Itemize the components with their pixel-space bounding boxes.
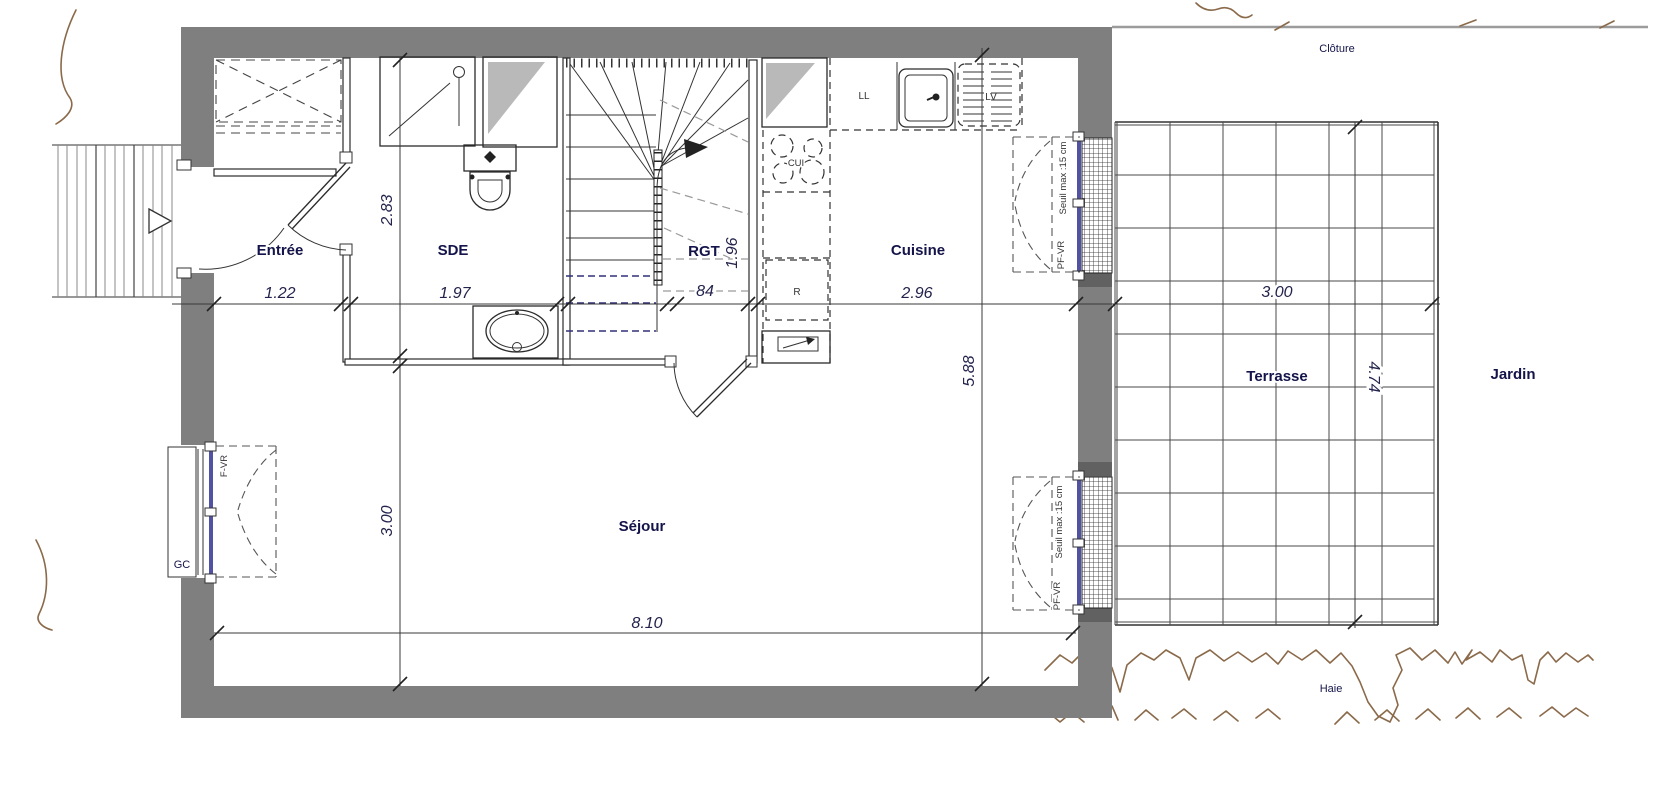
hedge-label: Haie bbox=[1320, 683, 1343, 695]
toilet bbox=[464, 145, 516, 210]
shutter-grille bbox=[1082, 477, 1112, 608]
room-label-entree: Entrée bbox=[257, 242, 304, 259]
partitions-and-doors bbox=[177, 58, 757, 417]
dim-sejour-depth: 3.00 bbox=[379, 505, 396, 536]
tall-cabinet-panel bbox=[762, 58, 827, 127]
entry-closet bbox=[214, 60, 341, 176]
counter-outline bbox=[763, 58, 1022, 363]
window-label-pf-vr-sejour: PF-VR bbox=[1052, 582, 1063, 611]
dim-terrasse-width: 3.00 bbox=[1261, 284, 1292, 301]
threshold-label-sejour: Seuil max :15 cm bbox=[1054, 485, 1065, 558]
wall-bottom bbox=[181, 686, 1112, 718]
roller-box-gc bbox=[168, 447, 196, 577]
room-label-sejour: Séjour bbox=[619, 518, 666, 535]
appliance-label-cooktop: CUI bbox=[788, 158, 804, 169]
window-label-pf-vr-kitchen: PF-VR bbox=[1056, 241, 1067, 270]
bathroom-fixtures bbox=[380, 57, 558, 358]
garden-area: Clôture Terrasse Jardin Haie bbox=[1045, 3, 1648, 724]
wall-top bbox=[181, 27, 1112, 58]
sink bbox=[897, 62, 955, 130]
appliance-label-washer: LL bbox=[858, 91, 870, 102]
front-door-opening bbox=[179, 167, 216, 273]
front-door-jamb-cap bbox=[177, 160, 191, 170]
left-plant-squiggle-top bbox=[56, 10, 76, 124]
staircase bbox=[566, 62, 749, 332]
dim-cuisine-width: 2.96 bbox=[900, 285, 932, 302]
room-label-sde: SDE bbox=[438, 242, 469, 259]
window-label-f-vr: F-VR bbox=[219, 455, 230, 477]
room-label-rgt: RGT bbox=[688, 243, 720, 260]
floor-plan-drawing: Clôture Terrasse Jardin Haie bbox=[0, 0, 1667, 800]
shower bbox=[380, 57, 475, 146]
rgt-door bbox=[665, 356, 757, 417]
entrance-direction-arrow bbox=[149, 209, 171, 233]
radiator-box bbox=[762, 331, 830, 363]
fence-label: Clôture bbox=[1319, 43, 1354, 55]
dim-sde-width: 1.97 bbox=[439, 285, 471, 302]
dim-rgt-depth: 1.96 bbox=[724, 237, 741, 268]
wall-stairs-sejour bbox=[563, 359, 672, 365]
dim-cuisine-depth: 5.88 bbox=[961, 355, 978, 386]
washbasin bbox=[473, 306, 558, 358]
wall-left bbox=[181, 58, 214, 686]
dim-sde-depth: 2.83 bbox=[379, 194, 396, 226]
terrace-label: Terrasse bbox=[1246, 368, 1307, 385]
top-window-panel bbox=[483, 57, 557, 147]
door-jamb-cap bbox=[340, 152, 352, 163]
dim-entree-width: 1.22 bbox=[264, 285, 295, 302]
dim-sejour-width: 8.10 bbox=[631, 615, 662, 632]
fence-plant-marks bbox=[1275, 20, 1614, 30]
fence-plant-squiggle bbox=[1196, 3, 1252, 18]
dim-rgt-width: 84 bbox=[696, 283, 714, 300]
room-label-cuisine: Cuisine bbox=[891, 242, 945, 259]
entrance-steps bbox=[36, 10, 181, 630]
shutter-grille bbox=[1082, 138, 1112, 273]
partition-rgt-cuisine bbox=[749, 60, 757, 363]
kitchen-fixtures bbox=[762, 58, 1022, 363]
wall-sde-sejour bbox=[345, 359, 568, 365]
garden-label: Jardin bbox=[1490, 366, 1535, 383]
appliance-label-fridge: R bbox=[793, 287, 800, 298]
front-door-jamb-cap bbox=[177, 268, 191, 278]
partition-entree-sde-upper bbox=[343, 58, 350, 158]
floor-plan-canvas: Clôture Terrasse Jardin Haie bbox=[0, 0, 1667, 800]
appliance-label-dishwasher: LV bbox=[985, 92, 997, 103]
threshold-label-kitchen: Seuil max :15 cm bbox=[1058, 141, 1069, 214]
left-plant-squiggle-bottom bbox=[36, 540, 52, 630]
roller-box-label: GC bbox=[174, 559, 191, 571]
dim-terrasse-depth: 4.74 bbox=[1365, 361, 1382, 392]
